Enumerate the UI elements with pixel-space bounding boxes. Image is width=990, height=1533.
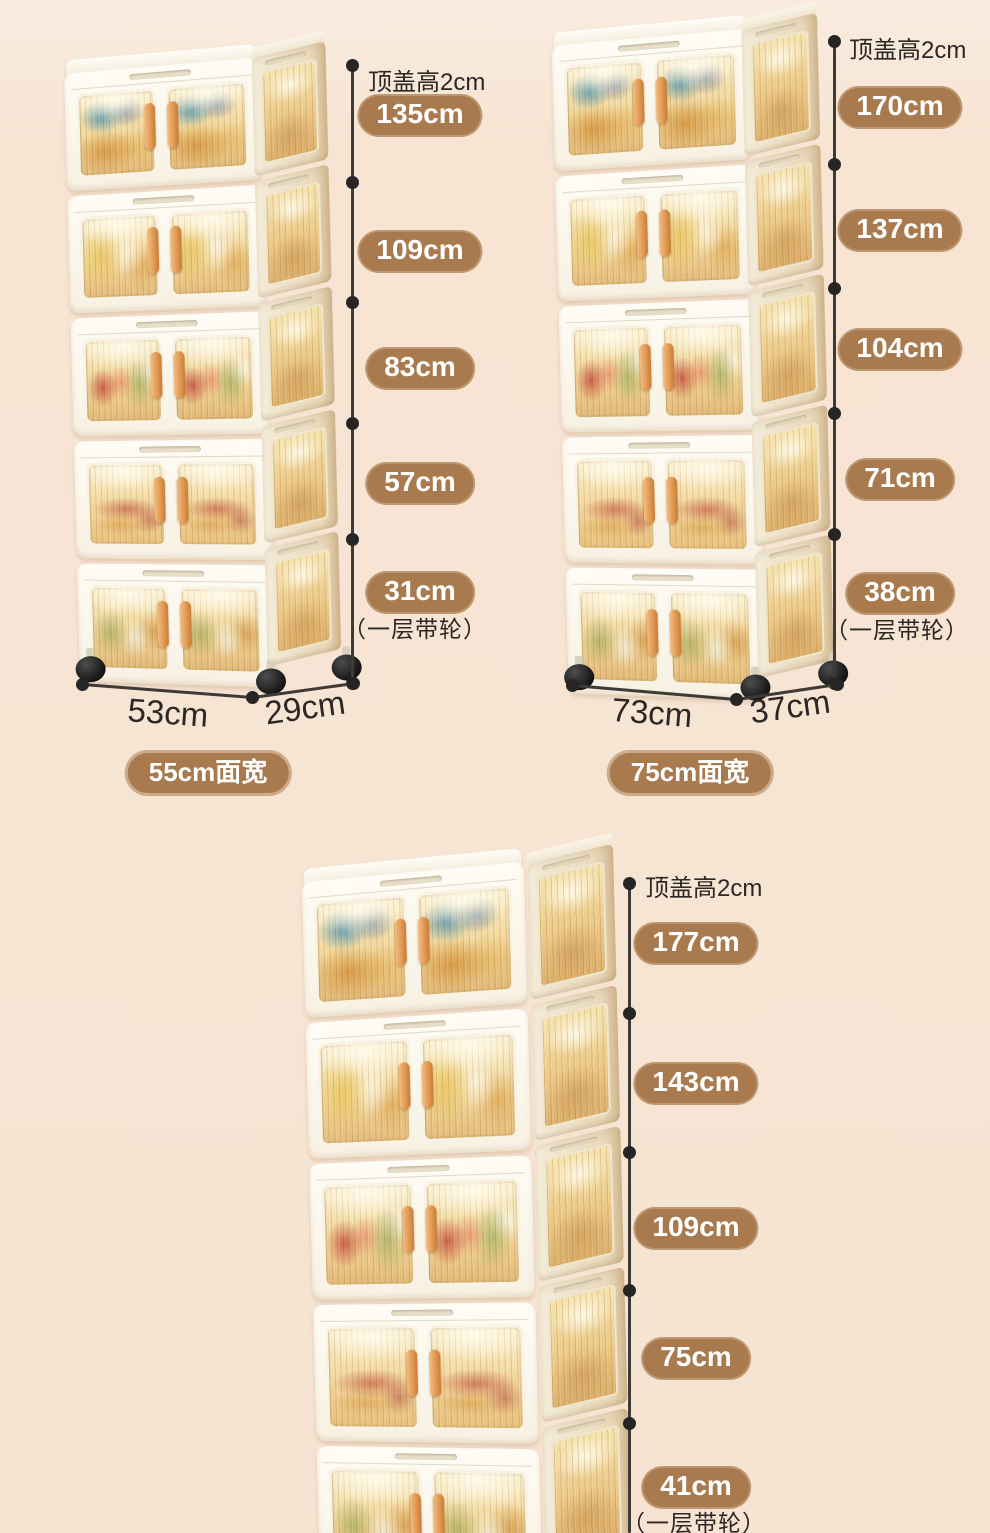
door-handle bbox=[173, 351, 185, 398]
cabinet-front bbox=[64, 57, 276, 688]
door-handle bbox=[398, 1062, 410, 1109]
cabinet-body bbox=[537, 10, 855, 718]
side-window bbox=[551, 1425, 622, 1533]
door-handle bbox=[180, 601, 192, 648]
cabinet-large-illustration bbox=[292, 850, 637, 1533]
cabinet-front bbox=[552, 28, 767, 700]
wheel bbox=[256, 662, 287, 695]
door-handle bbox=[167, 101, 179, 149]
height-badge: 109cm bbox=[357, 230, 482, 273]
tier-5 bbox=[317, 1446, 543, 1533]
lid-latch bbox=[139, 446, 201, 453]
tier-2 bbox=[67, 184, 265, 313]
dimension-dot bbox=[831, 678, 844, 691]
cabinet-side bbox=[252, 41, 341, 666]
height-badge: 57cm bbox=[365, 462, 475, 505]
dimension-dot bbox=[828, 528, 841, 541]
door-handle bbox=[177, 476, 189, 523]
height-badge: 41cm bbox=[641, 1466, 751, 1509]
dimension-dot bbox=[346, 417, 359, 430]
side-window bbox=[261, 58, 319, 164]
side-window bbox=[754, 160, 814, 274]
side-window bbox=[548, 1284, 619, 1411]
wheel-tier-note: （一层带轮） bbox=[622, 1504, 766, 1533]
door-handle bbox=[150, 352, 162, 399]
door-handle bbox=[406, 1350, 418, 1397]
wheel-tier-note: （一层带轮） bbox=[343, 610, 487, 644]
front-width-label: 53cm bbox=[126, 691, 209, 735]
side-window bbox=[540, 1002, 611, 1129]
tier-5 bbox=[77, 564, 276, 688]
top-cap-label: 顶盖高2cm bbox=[849, 30, 966, 65]
dimension-dot bbox=[246, 691, 259, 704]
height-badge: 109cm bbox=[633, 1207, 758, 1250]
door-handle bbox=[662, 343, 674, 390]
height-badge: 71cm bbox=[845, 458, 955, 501]
tier-3 bbox=[70, 311, 269, 436]
dimension-dot bbox=[347, 677, 360, 690]
dimension-dot bbox=[623, 877, 636, 890]
side-window bbox=[274, 548, 332, 654]
cabinet-body bbox=[49, 40, 366, 713]
side-tier bbox=[255, 164, 332, 299]
cabinet-75-illustration bbox=[546, 14, 846, 714]
door-handle bbox=[154, 476, 166, 523]
wheel bbox=[331, 648, 362, 681]
height-badge: 137cm bbox=[837, 209, 962, 252]
side-tier bbox=[531, 985, 620, 1141]
lid-latch bbox=[395, 1453, 457, 1460]
dimension-dot bbox=[346, 59, 359, 72]
dimension-dot bbox=[828, 282, 841, 295]
side-tier bbox=[258, 286, 335, 421]
side-window bbox=[764, 552, 824, 666]
side-window bbox=[264, 181, 322, 287]
door-handle bbox=[646, 609, 658, 656]
lid-latch bbox=[618, 41, 680, 52]
wheel-tier-note: （一层带轮） bbox=[825, 611, 969, 645]
dimension-dot bbox=[346, 296, 359, 309]
product-size-diagram: 顶盖高2cm 135cm 109cm 83cm 57cm 31cm （一层带轮）… bbox=[0, 0, 990, 1533]
dimension-dot bbox=[623, 1284, 636, 1297]
door-handle bbox=[421, 1061, 433, 1109]
door-handle bbox=[170, 226, 182, 273]
dimension-dot bbox=[346, 176, 359, 189]
side-window bbox=[761, 421, 821, 535]
door-handle bbox=[433, 1494, 445, 1533]
side-tier bbox=[752, 404, 831, 548]
height-badge: 75cm bbox=[641, 1337, 751, 1380]
height-badge: 38cm bbox=[845, 572, 955, 615]
lid-latch bbox=[628, 442, 690, 449]
glass-door bbox=[427, 1324, 526, 1431]
door-handle bbox=[639, 344, 651, 391]
lid-latch bbox=[621, 174, 683, 184]
face-width-badge: 55cm面宽 bbox=[125, 750, 292, 796]
height-badge: 104cm bbox=[837, 328, 962, 371]
height-badge: 177cm bbox=[633, 922, 758, 965]
height-badge: 83cm bbox=[365, 347, 475, 390]
glass-door bbox=[420, 1031, 519, 1142]
side-tier bbox=[261, 409, 338, 544]
height-dimension-line bbox=[628, 883, 631, 1533]
tier-1 bbox=[64, 57, 262, 191]
height-badge: 31cm bbox=[365, 571, 475, 614]
lid-latch bbox=[632, 575, 694, 582]
door-handle bbox=[144, 102, 156, 150]
door-handle bbox=[643, 477, 655, 524]
tier-2 bbox=[555, 164, 756, 302]
lid-latch bbox=[129, 69, 191, 80]
dimension-dot bbox=[623, 1007, 636, 1020]
side-tier bbox=[527, 844, 616, 1000]
side-window bbox=[267, 303, 325, 409]
height-badge: 170cm bbox=[837, 86, 962, 129]
side-tier bbox=[745, 143, 824, 287]
door-handle bbox=[669, 610, 681, 657]
door-handle bbox=[425, 1205, 437, 1252]
tier-3 bbox=[558, 299, 759, 432]
height-dimension-line bbox=[833, 41, 836, 683]
glass-door bbox=[424, 1178, 523, 1287]
side-tier bbox=[748, 274, 827, 418]
door-handle bbox=[659, 210, 671, 258]
door-handle bbox=[636, 211, 648, 258]
side-tier bbox=[542, 1408, 631, 1533]
door-handle bbox=[147, 227, 159, 274]
door-handle bbox=[418, 916, 430, 964]
door-handle bbox=[402, 1206, 414, 1253]
dimension-dot bbox=[828, 35, 841, 48]
side-tier bbox=[538, 1267, 627, 1423]
cabinet-side bbox=[527, 844, 631, 1533]
dimension-dot bbox=[730, 693, 743, 706]
lid-latch bbox=[384, 1020, 446, 1030]
cabinet-front bbox=[302, 861, 543, 1533]
lid-latch bbox=[380, 875, 442, 887]
glass-door bbox=[431, 1469, 530, 1533]
height-badge: 135cm bbox=[357, 94, 482, 137]
side-window bbox=[537, 861, 608, 988]
front-width-label: 73cm bbox=[610, 691, 693, 735]
lid-latch bbox=[625, 308, 687, 316]
glass-door bbox=[416, 884, 515, 998]
dimension-dot bbox=[623, 1146, 636, 1159]
side-window bbox=[751, 30, 811, 144]
side-tier bbox=[252, 41, 329, 176]
dimension-dot bbox=[828, 158, 841, 171]
lid-latch bbox=[136, 320, 198, 328]
dimension-dot bbox=[346, 533, 359, 546]
door-handle bbox=[410, 1493, 422, 1533]
cabinet-side bbox=[741, 13, 834, 679]
height-badge: 143cm bbox=[633, 1062, 758, 1105]
tier-4 bbox=[74, 439, 273, 561]
dimension-dot bbox=[828, 407, 841, 420]
door-handle bbox=[429, 1350, 441, 1397]
tier-5 bbox=[565, 568, 766, 701]
side-window bbox=[544, 1143, 615, 1270]
door-handle bbox=[633, 78, 645, 126]
face-width-badge: 75cm面宽 bbox=[607, 750, 774, 796]
door-handle bbox=[655, 76, 667, 124]
door-handle bbox=[666, 476, 678, 523]
lid-latch bbox=[391, 1309, 453, 1316]
top-cap-label: 顶盖高2cm bbox=[368, 62, 485, 97]
side-tier bbox=[535, 1126, 624, 1282]
cabinet-body bbox=[283, 846, 646, 1533]
cabinet-55-illustration bbox=[58, 44, 358, 709]
door-handle bbox=[395, 918, 407, 966]
tier-4 bbox=[313, 1302, 539, 1444]
height-dimension-line bbox=[351, 65, 354, 683]
tier-2 bbox=[305, 1008, 531, 1159]
tier-1 bbox=[302, 861, 528, 1018]
side-tier bbox=[265, 531, 342, 666]
side-window bbox=[757, 291, 817, 405]
lid-latch bbox=[133, 195, 195, 205]
lid-latch bbox=[142, 571, 204, 578]
dimension-dot bbox=[76, 678, 89, 691]
top-cap-label: 顶盖高2cm bbox=[645, 868, 762, 903]
side-tier bbox=[741, 13, 820, 157]
tier-3 bbox=[309, 1155, 535, 1300]
dimension-dot bbox=[623, 1417, 636, 1430]
side-window bbox=[271, 426, 329, 532]
tier-1 bbox=[552, 28, 753, 171]
tier-4 bbox=[562, 435, 763, 565]
dimension-dot bbox=[566, 679, 579, 692]
door-handle bbox=[157, 601, 169, 648]
lid-latch bbox=[387, 1165, 449, 1173]
